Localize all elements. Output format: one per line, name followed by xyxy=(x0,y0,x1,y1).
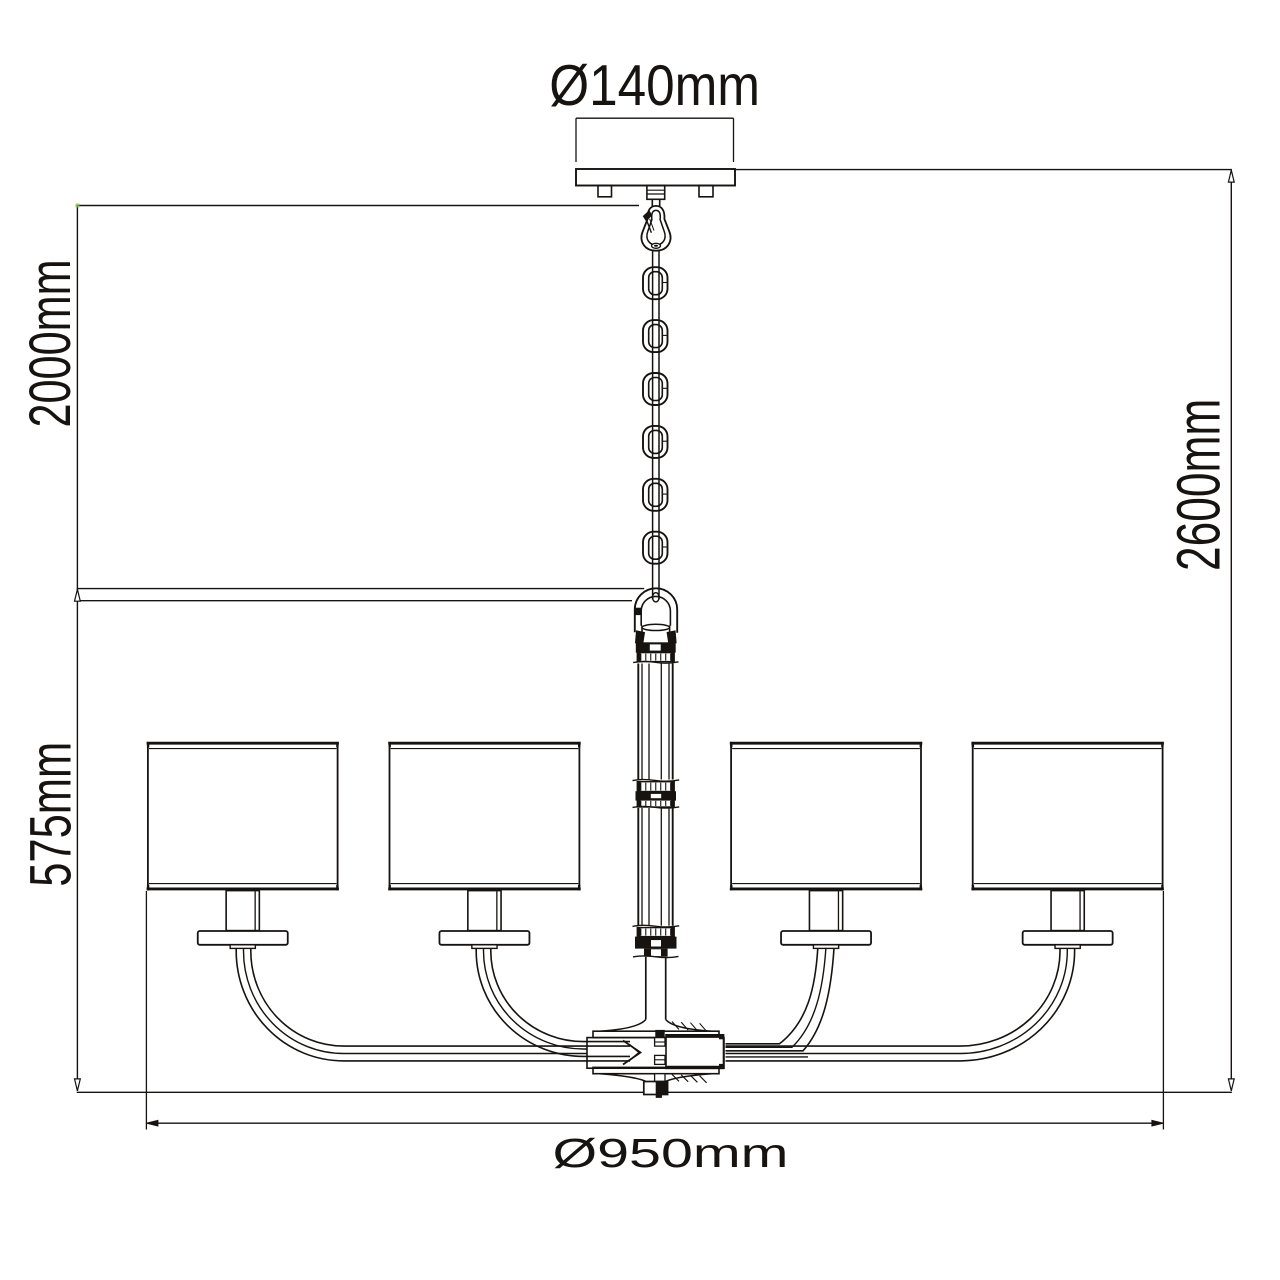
svg-text:575mm: 575mm xyxy=(19,742,83,887)
svg-text:2600mm: 2600mm xyxy=(1164,399,1233,571)
svg-text:Ø950mm: Ø950mm xyxy=(553,1130,789,1176)
svg-text:2000mm: 2000mm xyxy=(18,259,83,427)
svg-text:Ø140mm: Ø140mm xyxy=(549,53,760,117)
